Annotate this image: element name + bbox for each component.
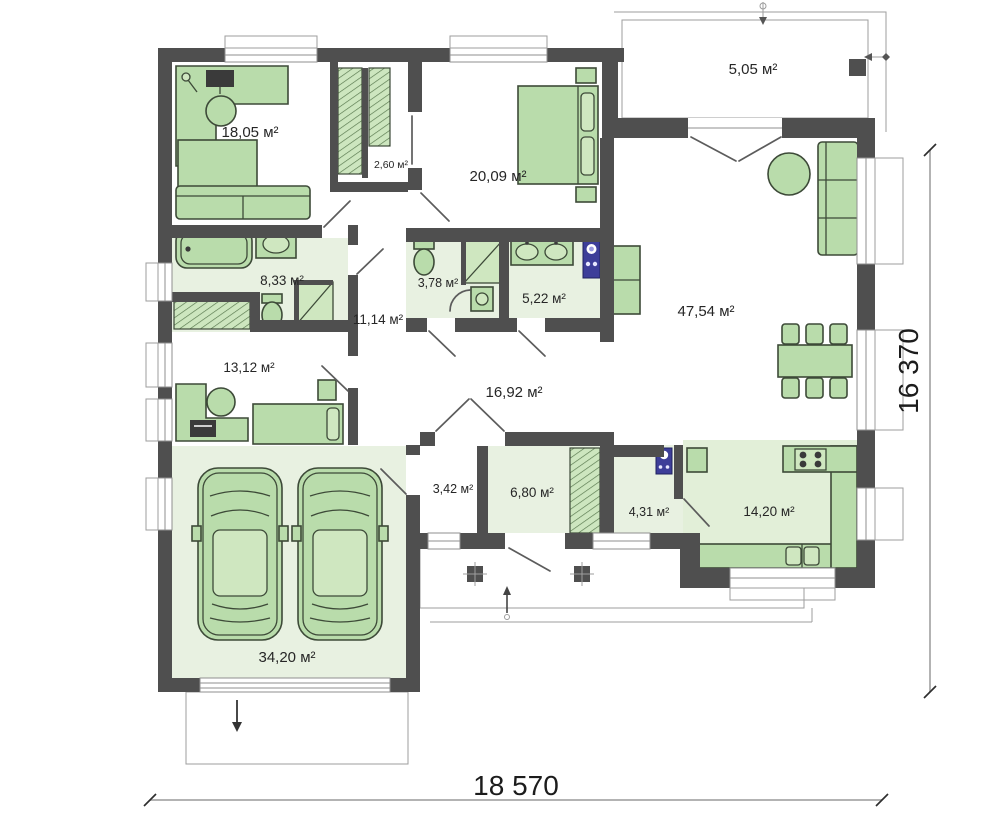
room-label-utility: 4,31 м² xyxy=(629,505,670,519)
garage-door xyxy=(200,678,390,692)
room-label-bedroom-1: 18,05 м² xyxy=(221,124,278,141)
room-label-living-room: 47,54 м² xyxy=(677,303,734,320)
pillow xyxy=(327,408,339,440)
room-label-entry: 3,42 м² xyxy=(433,482,474,496)
wardrobe-hatch xyxy=(338,68,362,174)
car xyxy=(192,468,288,640)
dining-table xyxy=(778,345,852,377)
cabinet xyxy=(687,448,707,472)
driveway-arrow-icon xyxy=(232,722,242,732)
room-label-bedroom-2: 20,09 м² xyxy=(469,168,526,185)
round-pouf xyxy=(768,153,810,195)
room-label-shower-room: 3,78 м² xyxy=(418,276,459,290)
dimension-width: 18 570 xyxy=(473,770,559,801)
floor-plan: 18,05 м² 2,60 м² 20,09 м² 5,05 м² 47,54 … xyxy=(0,0,1000,822)
room-label-closet: 2,60 м² xyxy=(374,159,409,171)
desk-lamp-icon xyxy=(182,73,190,81)
kitchen-sink xyxy=(804,547,819,565)
kitchen-sink xyxy=(786,547,801,565)
wardrobe-hatch xyxy=(369,68,390,146)
nightstand xyxy=(318,380,336,400)
monitor-icon xyxy=(206,70,234,87)
chair xyxy=(207,388,235,416)
room-label-terrace: 5,05 м² xyxy=(729,61,778,78)
room-label-kitchen: 14,20 м² xyxy=(743,504,795,519)
room-label-bathroom-1: 5,22 м² xyxy=(522,291,566,306)
chair xyxy=(806,324,823,344)
room-label-garage: 34,20 м² xyxy=(258,649,315,666)
stove xyxy=(795,449,826,470)
wardrobe-hatch xyxy=(174,299,250,329)
corner-sofa xyxy=(818,142,858,255)
chair xyxy=(830,378,847,398)
room-label-wardrobe-room: 6,80 м² xyxy=(510,485,554,500)
entrance-arrow-icon xyxy=(503,586,511,595)
chair xyxy=(782,378,799,398)
car xyxy=(292,468,388,640)
chair xyxy=(782,324,799,344)
room-label-bedroom-3: 13,12 м² xyxy=(223,360,275,375)
bed xyxy=(178,140,257,187)
floor-plan-drawing: 18,05 м² 2,60 м² 20,09 м² 5,05 м² 47,54 … xyxy=(0,0,1000,822)
printer-icon xyxy=(190,420,216,437)
room-label-corridor: 16,92 м² xyxy=(485,384,542,401)
room-label-hall: 11,14 м² xyxy=(353,312,404,327)
room-label-bathroom-2: 8,33 м² xyxy=(260,273,304,288)
wardrobe-hatch xyxy=(570,448,600,533)
pillow xyxy=(581,93,594,131)
chair xyxy=(806,378,823,398)
terrace-pillar xyxy=(849,59,866,76)
nightstand xyxy=(576,187,596,202)
driveway xyxy=(186,692,408,764)
nightstand xyxy=(576,68,596,83)
chair xyxy=(206,96,236,126)
dimension-height: 16 370 xyxy=(893,328,924,414)
pillow xyxy=(581,137,594,175)
chair xyxy=(830,324,847,344)
